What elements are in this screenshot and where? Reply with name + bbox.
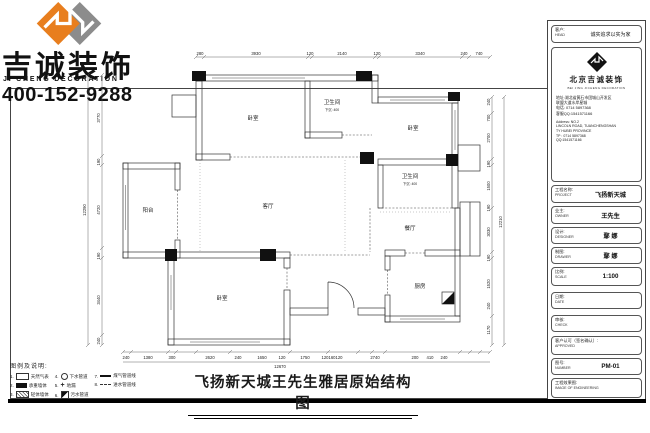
- dim-label: 3440: [96, 295, 101, 305]
- legend-number: 2.: [10, 383, 14, 388]
- company-name-en: BEI JING JICHENG DECORATION: [568, 86, 626, 90]
- floor-plan: 280 3930 120 2140 120 3340 240 740 3770 …: [80, 40, 510, 370]
- dim-label: 280: [197, 51, 205, 56]
- titleblock-rendering: 工程效果图: IMAGE OF ENGINEERING: [551, 378, 642, 398]
- dim-label: 4720: [96, 205, 101, 215]
- titleblock-number: 图号: NUMBER PM-01: [551, 358, 642, 375]
- dim-label: 120: [336, 355, 344, 360]
- room-note-bath2: 下沉: 400: [403, 181, 417, 186]
- room-note-bath1: 下沉: 400: [325, 107, 339, 112]
- solid-line-icon: [100, 375, 111, 377]
- dim-label: 240: [461, 51, 469, 56]
- titleblock-scale: 比例: SCALE 1:100: [551, 267, 642, 286]
- legend-item: 4. 下水管道: [55, 373, 89, 380]
- plus-icon: +: [61, 383, 65, 388]
- titleblock-designer: 设计: DESIGNER 鄢 娜: [551, 227, 642, 244]
- jicheng-diamond-mini-logo-icon: [587, 52, 607, 72]
- dim-label: 740: [476, 51, 484, 56]
- legend-label: 煤气管道线: [113, 373, 136, 379]
- dim-label: 190: [486, 204, 491, 212]
- legend-label: 轻体墙体: [31, 392, 49, 398]
- dim-label: 2620: [205, 355, 215, 360]
- jicheng-diamond-logo-icon: [36, 0, 102, 45]
- dim-total-label: 12210: [498, 216, 503, 228]
- dim-total-label: 12290: [82, 204, 87, 216]
- field-value: 鄢 娜: [582, 228, 639, 243]
- titleblock-owner: 业主: OWNER 王先生: [551, 206, 642, 224]
- walls: [123, 75, 480, 345]
- legend-number: 5.: [55, 383, 59, 388]
- legend-number: 1.: [10, 374, 14, 379]
- dim-label: 240: [235, 355, 243, 360]
- room-label-bath1: 卫生间: [324, 98, 341, 106]
- field-value: 鄢 娜: [582, 248, 639, 263]
- field-value: 飞扬新天城: [582, 186, 639, 202]
- legend-label: 下水管道: [70, 374, 88, 380]
- field-value: 王先生: [582, 207, 639, 223]
- dim-label: 410: [427, 355, 435, 360]
- dim-labels-left: 3770 190 4720 190 3440 240 12290: [82, 113, 101, 345]
- titleblock-left-border: [547, 20, 548, 397]
- legend-item: 5. + 地漏: [55, 383, 89, 389]
- room-label-dining: 餐厅: [404, 224, 416, 232]
- sheet-right-border: [645, 20, 646, 399]
- dim-label: 3340: [415, 51, 425, 56]
- legend-label: 进水管道线: [113, 382, 136, 388]
- dim-label: 1520: [486, 279, 491, 289]
- legend-number: 8.: [95, 382, 99, 387]
- dim-label: 700: [486, 114, 491, 122]
- legend-item: 2. 承重墙体: [10, 383, 49, 389]
- dim-label: 190: [486, 254, 491, 262]
- company-address-en: Address: NO.2 LINCOLN ROAD, TUANCHENGSHA…: [552, 120, 641, 143]
- dim-label: 1170: [486, 325, 491, 335]
- dim-label: 300: [169, 355, 177, 360]
- dim-label: 120: [374, 51, 382, 56]
- legend: 图例及说明: 1. 天然气表 2. 承重墙体 3. 轻体墙体: [10, 361, 180, 399]
- dim-label: 240: [123, 355, 131, 360]
- room-labels: 卧室 卫生间 下沉: 400 卧室 卫生间 下沉: 400 客厅 餐厅 厨房 阳…: [142, 98, 426, 302]
- dim-label: 2700: [486, 133, 491, 143]
- dashed-line-icon: [100, 384, 111, 385]
- field-value: [582, 293, 639, 308]
- legend-number: 7.: [95, 374, 99, 379]
- room-label-bedroom-tr: 卧室: [407, 124, 419, 132]
- rect-outline-icon: [16, 373, 29, 380]
- field-value: [582, 316, 639, 331]
- dim-label: 1650: [257, 355, 267, 360]
- room-label-living: 客厅: [262, 202, 274, 210]
- titleblock-drawer: 制图: DRAWER 鄢 娜: [551, 247, 642, 264]
- room-label-kitchen: 厨房: [414, 282, 426, 290]
- room-label-bedroom-bl: 卧室: [216, 294, 228, 302]
- dim-label: 2140: [337, 51, 347, 56]
- rect-hatched-icon: [16, 391, 29, 398]
- legend-number: 3.: [10, 392, 14, 397]
- titleblock-date: 日期: DATE: [551, 292, 642, 309]
- dim-label: 1500: [486, 181, 491, 191]
- titleblock-customer: 客户: HEAD 诚实追求以实为家: [551, 25, 642, 43]
- drawing-title: 飞扬新天城王先生雅居原始结构图: [188, 371, 418, 416]
- titleblock-approved: 客户认可（签名确认）: APPROVED: [551, 336, 642, 355]
- field-value: 诚实追求以实为家: [582, 26, 639, 42]
- field-value: [582, 337, 639, 354]
- dim-label: 200: [412, 355, 420, 360]
- legend-label: 地漏: [67, 383, 76, 389]
- circle-icon: [61, 373, 68, 380]
- legend-number: 6.: [55, 393, 59, 398]
- titleblock-check: 审核: CHECK: [551, 315, 642, 332]
- field-value: [582, 379, 639, 397]
- dim-label: 3930: [251, 51, 261, 56]
- dim-label: 1750: [300, 355, 310, 360]
- dim-label: 190: [486, 160, 491, 168]
- field-value: 1:100: [582, 268, 639, 285]
- dim-label: 1380: [143, 355, 153, 360]
- column-blocks: [165, 71, 460, 304]
- dim-label: 120: [279, 355, 287, 360]
- room-label-balcony: 阳台: [142, 206, 154, 214]
- dim-labels-right: 240 700 2700 190 1500 190 3030 190 1520 …: [486, 98, 503, 335]
- rect-filled-icon: [16, 383, 27, 388]
- dim-label: 120: [307, 51, 315, 56]
- legend-number: 4.: [55, 374, 59, 379]
- dim-label: 3030: [486, 227, 491, 237]
- legend-item: 1. 天然气表: [10, 373, 49, 380]
- field-value: PM-01: [582, 359, 639, 374]
- kitchen-flue-icon: [442, 292, 454, 304]
- dim-label: 2740: [370, 355, 380, 360]
- legend-item: 7. 煤气管道线: [95, 373, 136, 379]
- corner-square-icon: [61, 391, 69, 399]
- room-label-bath2: 卫生间: [402, 172, 419, 180]
- titleblock-project: 工程名称: PROJECT 飞扬新天城: [551, 185, 642, 203]
- company-address: 地址:湖北省黄石市团城山开发区 联盟大道水岸星城 电话: 0714 589736…: [552, 95, 641, 116]
- legend-heading: 图例及说明:: [10, 361, 180, 370]
- dim-labels-top: 280 3930 120 2140 120 3340 240 740: [197, 51, 484, 56]
- dim-label: 240: [486, 302, 491, 310]
- dim-label: 190: [96, 158, 101, 166]
- legend-label: 天然气表: [31, 374, 49, 380]
- dim-total-label: 12670: [274, 364, 286, 369]
- titleblock-company: 北京吉诚装饰 BEI JING JICHENG DECORATION 地址:湖北…: [551, 47, 642, 182]
- room-label-bedroom-tl: 卧室: [247, 114, 259, 122]
- dim-label: 190: [96, 252, 101, 260]
- dim-label: 3770: [96, 113, 101, 123]
- legend-item: 8. 进水管道线: [95, 382, 136, 388]
- dim-label: 240: [486, 98, 491, 106]
- legend-item: 6. 污水管道: [55, 391, 89, 399]
- dim-label: 240: [96, 337, 101, 345]
- titleblock-top-border: [547, 20, 646, 21]
- legend-item: 3. 轻体墙体: [10, 391, 49, 398]
- company-name: 北京吉诚装饰: [570, 74, 624, 85]
- legend-label: 污水管道: [71, 392, 89, 398]
- legend-label: 承重墙体: [29, 383, 47, 389]
- dim-label: 240: [441, 355, 449, 360]
- drawing-sheet: 吉诚装饰 JI CHENG DECORATION 400-152-9288: [0, 0, 650, 433]
